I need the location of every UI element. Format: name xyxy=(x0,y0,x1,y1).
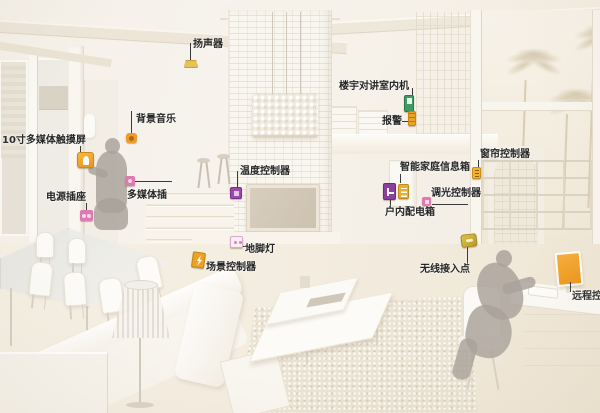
floor-lamp-base xyxy=(126,402,154,408)
floor-lamp-top xyxy=(124,280,158,290)
kettle xyxy=(300,276,310,288)
window-transom-bar xyxy=(482,102,600,111)
window-frame xyxy=(592,10,600,260)
annotation-line xyxy=(135,181,172,182)
temperature-controller-device-icon xyxy=(230,187,242,199)
wall-tv xyxy=(246,184,320,232)
annotation-line xyxy=(432,204,468,205)
multimedia-socket-device-icon xyxy=(125,176,135,186)
window-mullion xyxy=(29,50,38,242)
intercom-device-icon xyxy=(404,95,414,112)
annotation-speaker: 扬声器 xyxy=(193,39,223,50)
annotation-line xyxy=(570,282,571,292)
annotation-temperature-controller: 温度控制器 xyxy=(240,166,290,177)
pendant-cord xyxy=(272,12,273,96)
foot-lamp-device-icon xyxy=(230,236,243,248)
annotation-indoor-distribution-box: 户内配电箱 xyxy=(385,207,435,218)
bar-stool xyxy=(197,158,211,194)
pendant-cord xyxy=(300,12,301,96)
pendant-cord xyxy=(286,12,287,96)
info-box-device-icon xyxy=(398,184,409,199)
dining-chair xyxy=(28,261,53,297)
annotation-touchscreen: 10寸多媒体触摸屏 xyxy=(2,135,86,146)
side-cabinet xyxy=(0,352,108,413)
wireless-ap-device-icon xyxy=(460,233,477,248)
power-socket-device-icon xyxy=(80,210,93,221)
dimmer-device-icon xyxy=(422,197,431,206)
info-box-device-icon xyxy=(383,183,396,200)
mezzanine-cabinet xyxy=(330,106,357,136)
touchscreen-device-icon xyxy=(77,152,94,168)
alarm-device-icon xyxy=(408,111,416,126)
annotation-smart-home-info-box: 智能家庭信息箱 xyxy=(400,162,470,173)
glass-wall-pilaster xyxy=(470,10,482,262)
smart-home-diagram: 扬声器 背景音乐 10寸多媒体触摸屏 电源插座 多媒体插 温度控制器 地脚灯 场… xyxy=(0,0,600,413)
annotation-line xyxy=(237,171,238,187)
mouse xyxy=(562,294,570,299)
annotation-multimedia-socket: 多媒体插 xyxy=(127,190,167,201)
annotation-line xyxy=(131,111,132,134)
desk-drawers xyxy=(524,308,600,382)
stool-leg xyxy=(217,158,222,184)
remote-desktop-monitor xyxy=(555,251,584,287)
dining-chair xyxy=(36,232,54,258)
scene-controller-device-icon xyxy=(191,251,206,269)
annotation-foot-lamp: 地脚灯 xyxy=(245,244,275,255)
curtain-controller-device-icon xyxy=(472,167,481,179)
floor-lamp-pole xyxy=(139,338,141,404)
annotation-wireless-access-point: 无线接入点 xyxy=(420,264,470,275)
speaker-device-icon xyxy=(184,60,198,68)
stool-leg xyxy=(197,162,202,188)
annotation-line xyxy=(467,247,468,265)
stool-seat xyxy=(197,158,210,163)
annotation-intercom: 楼宇对讲室内机 xyxy=(339,81,409,92)
table-leg xyxy=(10,288,12,346)
dining-chair xyxy=(63,271,87,306)
stool-leg xyxy=(205,162,210,188)
annotation-remote-control: 远程控制 xyxy=(572,291,600,302)
background-music-device-icon xyxy=(126,133,137,143)
dining-chair xyxy=(68,238,86,264)
pendant-lamp xyxy=(252,94,318,138)
stool-seat xyxy=(217,154,230,159)
annotation-curtain-controller: 窗帘控制器 xyxy=(480,149,530,160)
annotation-line xyxy=(190,43,191,61)
annotation-line xyxy=(400,174,401,183)
stool-leg xyxy=(225,158,230,184)
coffee-table-leg xyxy=(376,328,378,346)
standing-person-silhouette xyxy=(94,198,128,230)
annotation-dimmer-controller: 调光控制器 xyxy=(431,188,481,199)
annotation-alarm: 报警 xyxy=(382,116,402,127)
roller-shade xyxy=(39,86,68,110)
annotation-scene-controller: 场景控制器 xyxy=(206,262,256,273)
annotation-power-socket: 电源插座 xyxy=(46,192,86,203)
annotation-background-music: 背景音乐 xyxy=(136,114,176,125)
bar-stool xyxy=(217,154,231,190)
railing-posts xyxy=(482,160,600,230)
metal-grid-divider xyxy=(416,12,470,134)
tv-screen xyxy=(250,188,316,228)
